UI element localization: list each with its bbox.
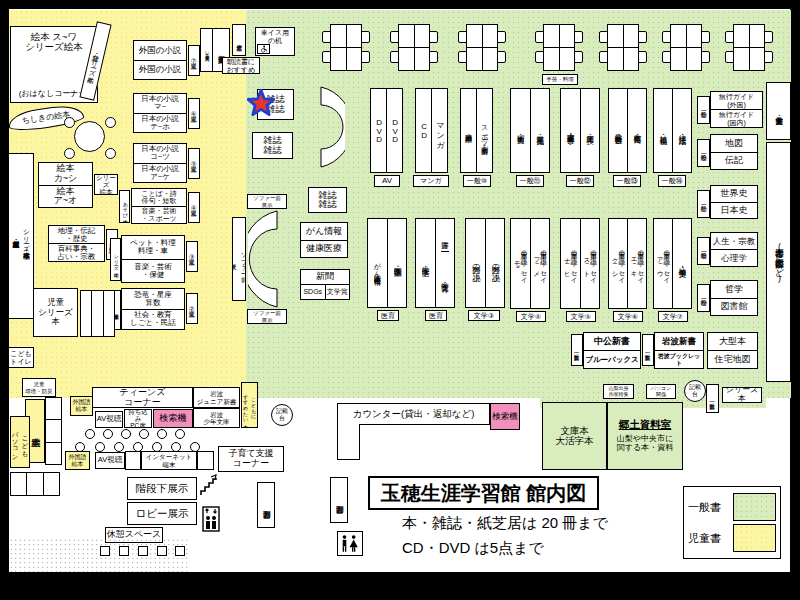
badge-general-shinsho-2: 一般新書 bbox=[642, 334, 654, 366]
legend-children-swatch bbox=[733, 524, 776, 552]
shelf-col: 文学・俳句・詩 bbox=[672, 219, 691, 308]
reading-table-group bbox=[390, 24, 436, 70]
kids-geography-shelf: 地理・伝記 ・歴史 百科事典・ 占い・宗教 bbox=[48, 225, 105, 262]
reading-table-group bbox=[662, 24, 708, 70]
stool bbox=[103, 429, 113, 439]
shelf-cell bbox=[81, 291, 91, 336]
table-cell bbox=[11, 473, 26, 495]
service-counter-wing bbox=[337, 424, 360, 460]
restroom-icon bbox=[339, 534, 361, 553]
internet-terminal: インターネット 端末 bbox=[141, 451, 197, 470]
shelf-maps-biography: 地図 伝記 bbox=[710, 134, 758, 170]
shelf-travel-guide: 旅行ガイド (外国) 旅行ガイド (国内) bbox=[710, 91, 763, 128]
shelf-col: 外国の小説 bbox=[485, 219, 505, 307]
shelf-row: 雑誌 雑誌 bbox=[253, 133, 292, 158]
sdgs-label: SDGs bbox=[301, 285, 326, 299]
badge-general-19: 一般⑲ bbox=[697, 284, 710, 312]
shelf-row: 外国の小説 bbox=[134, 41, 186, 60]
shelf-row: 音楽・芸術 ・スポーツ bbox=[132, 206, 186, 224]
wheelchair-icon bbox=[257, 44, 270, 54]
shelf-row: 新聞 bbox=[301, 270, 349, 284]
foreign-language-ehon-2: 外国語 絵本 bbox=[65, 451, 90, 470]
sofa-front-display-side: ソファー前 展示 bbox=[232, 217, 246, 301]
reading-table-group bbox=[535, 24, 581, 70]
shelf-row: 中公新書 bbox=[584, 333, 640, 350]
shelf-col: DVD bbox=[371, 89, 386, 172]
new-books-shelf-2: 新刊図書 bbox=[330, 477, 348, 523]
library-floor-map: 絵本 ス~ワ シリーズ絵本 (おはなしコーナー) 昔話・シリーズ絵本 ちしきの絵… bbox=[0, 0, 800, 600]
loan-limit-note-1: 本・雑誌・紙芝居は 20 冊まで bbox=[402, 514, 632, 534]
shelf-row: 社会・教育 しごと・民話 bbox=[122, 309, 184, 330]
badge-jido-5: 児童⑤ bbox=[188, 148, 200, 179]
shelf-col: 民俗・教育 bbox=[627, 89, 646, 172]
shelf-col: 外国の小説 bbox=[466, 219, 485, 307]
shelf-subcell: 洋書 bbox=[441, 219, 449, 251]
shelf-literature-5: 日本の小説・エッセイ ナ~ヒ 日本の小説・エッセイ ス~ト bbox=[560, 218, 600, 309]
yamanashi-authors-box: 山梨出身 作家特集 bbox=[603, 384, 634, 399]
badge-jido-2: 児童② bbox=[186, 293, 198, 324]
rest-table bbox=[138, 546, 148, 556]
shelf-label-manga: マンガ bbox=[413, 175, 449, 187]
service-counter: カウンター(貸出・返却など) bbox=[337, 403, 490, 425]
childcare-support-corner: 子育て支援 コーナー bbox=[218, 446, 284, 472]
shelf-cell bbox=[103, 291, 114, 336]
badge-general-17: 一般⑰ bbox=[697, 190, 710, 218]
shelf-label-general-14: 一般⑭ bbox=[658, 175, 686, 187]
shelf-literature-7: 日本の小説・エッセイ ア~ウ 文学・俳句・詩 bbox=[653, 218, 692, 309]
shelf-row: 図書館 bbox=[711, 298, 757, 316]
play-picture-books-label: あそび絵本 bbox=[119, 190, 130, 223]
storytelling-corner-label: (おはなしコーナー) bbox=[19, 90, 89, 99]
badge-general-shinsho-3: 一般新書 bbox=[706, 384, 719, 413]
shelf-label-iiku-2: 医育 bbox=[425, 310, 447, 321]
shelf-col: スポーツ・音楽・演劇 bbox=[476, 89, 492, 172]
writing-stand-east: 記載 台 bbox=[684, 380, 706, 402]
search-terminal-main: 検索機 bbox=[490, 403, 520, 430]
reading-table-group bbox=[725, 24, 771, 70]
kids-jp-novels-shelf-2: 日本の小説 コ~ツ 日本の小説 ア~ケ bbox=[133, 143, 187, 183]
sofa-front-display-bottom: ソファー前 展示 bbox=[247, 309, 287, 324]
reading-table-group bbox=[322, 24, 368, 70]
badge-general-18: 一般⑱ bbox=[697, 237, 710, 265]
teens-corner-header: ティーンズ コーナー bbox=[92, 387, 193, 408]
legend-children-label: 児童書 bbox=[688, 532, 721, 544]
shelf-row: ブルーバックス bbox=[584, 350, 640, 368]
shelf-col: 観光・産業 bbox=[530, 89, 550, 172]
shelf-row: ペット・料理 料理・車 bbox=[122, 236, 184, 259]
shelf-large-books: 大型本 住宅地図 bbox=[707, 332, 758, 369]
shelf-col: 医学・医学 bbox=[416, 219, 435, 307]
shelf-col: 手芸・料理・家事 bbox=[561, 89, 580, 172]
badge-general-shinsho-1: 一般新書 bbox=[571, 334, 583, 366]
you-are-here-star-icon bbox=[247, 89, 275, 117]
shelf-label-bungaku-4: 文学④ bbox=[516, 311, 546, 322]
legend-general-label: 一般書 bbox=[688, 501, 721, 513]
local-materials-room: 郷土資料室 山梨や中央市に 関する本・資料 bbox=[607, 402, 683, 470]
foreign-language-ehon-1: 外国語 絵本 bbox=[70, 396, 93, 416]
shelf-foreign-novels: 外国の小説 外国の小説 bbox=[465, 218, 505, 308]
shelf-row: 岩波新書 bbox=[655, 333, 703, 350]
table-cell bbox=[26, 473, 42, 495]
shelf-row: 大型本 bbox=[708, 333, 757, 350]
shelf-col: 日本の小説・エッセイ ス~ト bbox=[580, 219, 600, 308]
kids-left-wall-shelf: シリーズ本・点字絵本・布絵本・ 紙芝居・大型紙芝居・大型絵本 bbox=[8, 153, 34, 319]
shelf-row: 岩波ブックレット bbox=[655, 350, 703, 368]
badge-jido-3: 児童③ bbox=[186, 241, 198, 272]
shelf-medical-2: 医学・医学 洋書 育児・医学 bbox=[415, 218, 455, 308]
shelf-row: 日本史 bbox=[711, 202, 757, 219]
shelf-col: 技術・工業 bbox=[580, 89, 600, 172]
morning-reading-recommend: 朝読書に おすすめ bbox=[222, 57, 260, 74]
byo-pc-seat: 持ち込み PC席 bbox=[124, 409, 152, 428]
wheelchair-desk-label: 車イス用 の机 bbox=[261, 29, 289, 44]
kids-foreign-novels-shelf: 外国の小説 外国の小説 bbox=[133, 40, 187, 80]
reading-table-group bbox=[458, 24, 504, 70]
shelf-col: がん情報・医療・医学 bbox=[368, 219, 387, 307]
new-books-shelf-1: 新刊図書 bbox=[257, 482, 275, 528]
elevator-icon bbox=[202, 506, 220, 532]
shelf-label-bungaku-3: 文学③ bbox=[468, 310, 500, 321]
shelf-literature-4: 日本の小説・エッセイ モ~ 日本の小説・エッセイ フ~メ bbox=[510, 218, 550, 309]
shelf-row: 旅行ガイド (国内) bbox=[711, 109, 762, 127]
shelf-label-general-11: 一般⑪ bbox=[516, 175, 544, 187]
av-booth-2: AV視聴 bbox=[95, 452, 125, 469]
recommended-for-kids-shelf: こどもに すすめたい本 bbox=[241, 382, 258, 428]
series-books-box: シリーズ本 bbox=[722, 387, 762, 403]
shelf-col: 日本の小説・エッセイ ナ~ヒ bbox=[561, 219, 580, 308]
stool bbox=[157, 429, 167, 439]
shelf-col: 数学・自然科学 bbox=[609, 89, 627, 172]
stool bbox=[175, 429, 185, 439]
writing-stand-center: 記載 台 bbox=[271, 404, 293, 426]
shelf-reference-books: 参考図書(図鑑・辞書など) bbox=[766, 142, 791, 382]
iwanami-junior-shinsho: 岩波 ジュニア新書 bbox=[193, 387, 240, 408]
shelf-col-split: 洋書 育児・医学 bbox=[435, 219, 455, 307]
shelf-chuko-shinsho: 中公新書 ブルーバックス bbox=[583, 332, 641, 369]
shelf-cell bbox=[46, 419, 61, 441]
shelf-label-bungaku-5: 文学⑤ bbox=[566, 311, 596, 322]
kids-chair bbox=[64, 148, 75, 159]
shelf-col: 青い鳥文庫・他 bbox=[201, 29, 212, 71]
shelf-row: 雑誌 雑誌 bbox=[309, 188, 346, 212]
shelf-medical-1: がん情報・医療・医学 医療・医学 bbox=[367, 218, 407, 308]
loan-limit-note-2: CD・DVD は5点まで bbox=[402, 539, 632, 559]
shelf-col: マンガ bbox=[431, 89, 447, 172]
shelf-block-vertical bbox=[45, 397, 62, 465]
shelf-col: DVD bbox=[386, 89, 402, 172]
search-terminal-teens: 検索機 bbox=[153, 409, 193, 428]
shelf-row: 日本の小説 ア~ケ bbox=[134, 163, 186, 183]
shelf-row: 日本の小説 コ~ツ bbox=[134, 144, 186, 163]
shelf-general-10: 日本語・外国語 スポーツ・音楽・演劇 bbox=[460, 88, 493, 173]
kids-series-books-shelf: 児童 シリーズ本 bbox=[33, 288, 78, 337]
kids-hobby-shelf: ペット・料理 料理・車 音楽・芸術 ・保健 bbox=[121, 235, 185, 283]
legend-row-children: 児童書 bbox=[688, 524, 776, 552]
shelf-cell bbox=[46, 442, 61, 464]
shelf-subcell: 育児・医学 bbox=[441, 251, 449, 307]
shelf-label-general-10: 一般⑩ bbox=[463, 175, 491, 187]
stairs-icon bbox=[199, 474, 219, 496]
shelf-row: がん情報 bbox=[301, 223, 347, 240]
shelf-literature-collections: 文学全集・叢書 bbox=[766, 82, 791, 140]
shelf-row: 哲学 bbox=[711, 281, 757, 298]
rest-table bbox=[119, 546, 129, 556]
stool bbox=[139, 429, 149, 439]
shelf-col: 日本の小説・エッセイ モ~ bbox=[511, 219, 530, 308]
kids-chair bbox=[64, 117, 75, 128]
shelf-col: 芸術・美術 bbox=[511, 89, 530, 172]
shelf-general-13: 数学・自然科学 民俗・教育 bbox=[608, 88, 647, 173]
stool bbox=[95, 442, 105, 452]
kids-shelf-block bbox=[80, 290, 115, 337]
shelf-row: 伝記 bbox=[711, 152, 757, 170]
shelf-history: 世界史 日本史 bbox=[710, 185, 758, 219]
wheelchair-desk: 車イス用 の机 bbox=[255, 27, 295, 56]
picture-book-range: 絵本 ス~ワ シリーズ絵本 bbox=[25, 32, 83, 53]
newspaper-shelf: 新聞 SDGs 文学賞 bbox=[300, 269, 350, 300]
magazine-rack-3: 雑誌 雑誌 bbox=[308, 187, 347, 213]
shelf-row: 絵本 カ~シ bbox=[39, 163, 92, 185]
shelf-row: 世界史 bbox=[711, 186, 757, 202]
shelf-col: 日本の小説・エッセイ エ~キ bbox=[627, 219, 646, 308]
kids-jp-novels-shelf-1: 日本の小説 マ~ 日本の小説 テ~ホ bbox=[133, 93, 187, 133]
shelf-philosophy: 哲学 図書館 bbox=[710, 280, 758, 316]
sofa-front-display-top: ソファー前 展示 bbox=[247, 194, 287, 209]
shelf-row: 住宅地図 bbox=[708, 350, 757, 368]
shelf-row: 心理学 bbox=[711, 249, 757, 266]
series-ehon-side-label: シリーズ絵本 bbox=[110, 238, 121, 281]
badge-general-15: 一般⑮ bbox=[697, 96, 710, 124]
shelf-dvd: DVD DVD bbox=[370, 88, 403, 173]
shelf-label-av: AV bbox=[374, 175, 400, 187]
kids-ehon-shelf: 絵本 カ~シ 絵本 ア~オ bbox=[38, 162, 93, 208]
shelf-label-general-13: 一般⑬ bbox=[613, 175, 641, 187]
map-title: 玉穂生涯学習館 館内図 bbox=[368, 476, 599, 510]
kids-chair bbox=[105, 117, 116, 128]
shelf-row-split: SDGs 文学賞 bbox=[301, 284, 349, 299]
shelf-general-12: 手芸・料理・家事 技術・工業 bbox=[560, 88, 600, 173]
legend-row-general: 一般書 bbox=[688, 493, 776, 521]
shelf-row: 地理・伝記 ・歴史 bbox=[49, 226, 104, 243]
shelf-label-bungaku-7: 文学⑦ bbox=[658, 311, 688, 322]
shelf-row: 健康医療 bbox=[301, 240, 347, 258]
shelf-col: 税金・福祉 bbox=[654, 89, 672, 172]
table-cell bbox=[43, 473, 59, 495]
series-ehon-box: シリーズ 絵本 bbox=[94, 174, 118, 195]
shelf-col: 政治・法律 bbox=[672, 89, 691, 172]
literary-prize-label: 文学賞 bbox=[326, 285, 350, 299]
shelf-cell bbox=[46, 398, 61, 419]
kids-chair bbox=[105, 148, 116, 159]
booth-empty-1 bbox=[125, 451, 141, 470]
shelf-general-14: 税金・福祉 政治・法律 bbox=[653, 88, 692, 173]
shelf-row: 人生・宗教 bbox=[711, 233, 757, 249]
rest-table bbox=[175, 546, 185, 556]
kids-environment-box: 児童 環境・防災 bbox=[22, 378, 56, 397]
av-booth-1: AV視聴 bbox=[95, 411, 123, 428]
shelf-col: 医療・医学 bbox=[387, 219, 407, 307]
legend-general-swatch bbox=[733, 493, 776, 521]
shelf-literature-6: 日本の小説・エッセイ ク~シ 日本の小説・エッセイ エ~キ bbox=[608, 218, 647, 309]
under-stairs-display: 階段下展示 bbox=[127, 477, 197, 500]
shelf-col: 日本の小説・エッセイ ア~ウ bbox=[654, 219, 672, 308]
shelf-row: 地図 bbox=[711, 135, 757, 152]
shelf-iwanami-shinsho: 岩波新書 岩波ブックレット bbox=[654, 332, 704, 369]
rest-table bbox=[157, 546, 167, 556]
iwanami-shonen-bunko: 岩波 少年文庫 bbox=[193, 408, 240, 428]
kids-toilet: こども トイレ bbox=[8, 347, 34, 368]
shelf-cell bbox=[91, 291, 102, 336]
shelf-row: 百科事典・ 占い・宗教 bbox=[49, 243, 104, 261]
rest-table bbox=[100, 546, 110, 556]
kids-computer: こども パソコン bbox=[10, 416, 30, 468]
crescent-sofa-bottom bbox=[248, 210, 285, 308]
stool bbox=[114, 442, 124, 452]
bottom-left-table-block bbox=[10, 472, 60, 496]
shelf-row: 絵本 ア~オ bbox=[39, 185, 92, 208]
booth-empty-2 bbox=[197, 451, 214, 470]
bunko-large-print-room: 文庫本 大活字本 bbox=[542, 402, 607, 470]
shelf-col: 日本の小説・エッセイ ク~シ bbox=[609, 219, 627, 308]
shelf-row: 外国の小説 bbox=[134, 60, 186, 80]
shelf-general-11: 芸術・美術 観光・産業 bbox=[510, 88, 550, 173]
stool bbox=[85, 429, 95, 439]
kids-meisaku-shelf: 児童名作 bbox=[232, 24, 246, 56]
shelf-life-religion: 人生・宗教 心理学 bbox=[710, 232, 758, 267]
shelf-label-iiku-1: 医育 bbox=[377, 310, 399, 321]
lobby-display: ロビー展示 bbox=[127, 502, 197, 525]
local-materials-title: 郷土資料室 bbox=[619, 419, 672, 431]
shelf-row: 日本の小説 テ~ホ bbox=[134, 113, 186, 133]
badge-jido-7: 児童⑦ bbox=[188, 45, 200, 76]
badge-jido-6: 児童⑥ bbox=[188, 98, 200, 129]
kids-language-arts-shelf: ことば・詩 俳句・短歌 音楽・芸術 ・スポーツ bbox=[131, 188, 187, 224]
shelf-row: 日本の小説 マ~ bbox=[134, 94, 186, 113]
shelf-label-general-12: 一般⑫ bbox=[566, 175, 594, 187]
shelf-row: 恐竜・星座 算数 bbox=[122, 289, 184, 309]
cancer-info-shelf: がん情報 健康医療 bbox=[300, 222, 348, 258]
shelf-label-bungaku-6: 文学⑥ bbox=[613, 311, 643, 322]
shelf-col: CD bbox=[416, 89, 431, 172]
shelf-cd-manga: CD マンガ bbox=[415, 88, 448, 173]
shelf-col: 日本語・外国語 bbox=[461, 89, 476, 172]
stool bbox=[121, 429, 131, 439]
magazine-rack-2: 雑誌 雑誌 bbox=[252, 132, 293, 159]
shelf-row: 旅行ガイド (外国) bbox=[711, 92, 762, 109]
handicraft-note: 手芸・料理 bbox=[542, 74, 578, 85]
shelf-row: 音楽・芸術 ・保健 bbox=[122, 259, 184, 283]
reading-table-group bbox=[599, 24, 645, 70]
local-materials-desc: 山梨や中央市に 関する本・資料 bbox=[617, 435, 673, 453]
badge-general-16: 一般⑯ bbox=[697, 139, 710, 167]
shelf-row: ことば・詩 俳句・短歌 bbox=[132, 189, 186, 206]
pc-books-box: パソコン 関係 bbox=[646, 384, 676, 399]
crescent-sofa-top bbox=[313, 86, 345, 168]
kids-round-table bbox=[74, 121, 105, 152]
legend: 一般書 児童書 bbox=[683, 486, 781, 559]
badge-jido-4: 児童④ bbox=[188, 192, 200, 223]
kids-science-shelf: 恐竜・星座 算数 社会・教育 しごと・民話 bbox=[121, 288, 185, 330]
restroom-box bbox=[337, 531, 363, 556]
shelf-col: 日本の小説・エッセイ フ~メ bbox=[530, 219, 550, 308]
